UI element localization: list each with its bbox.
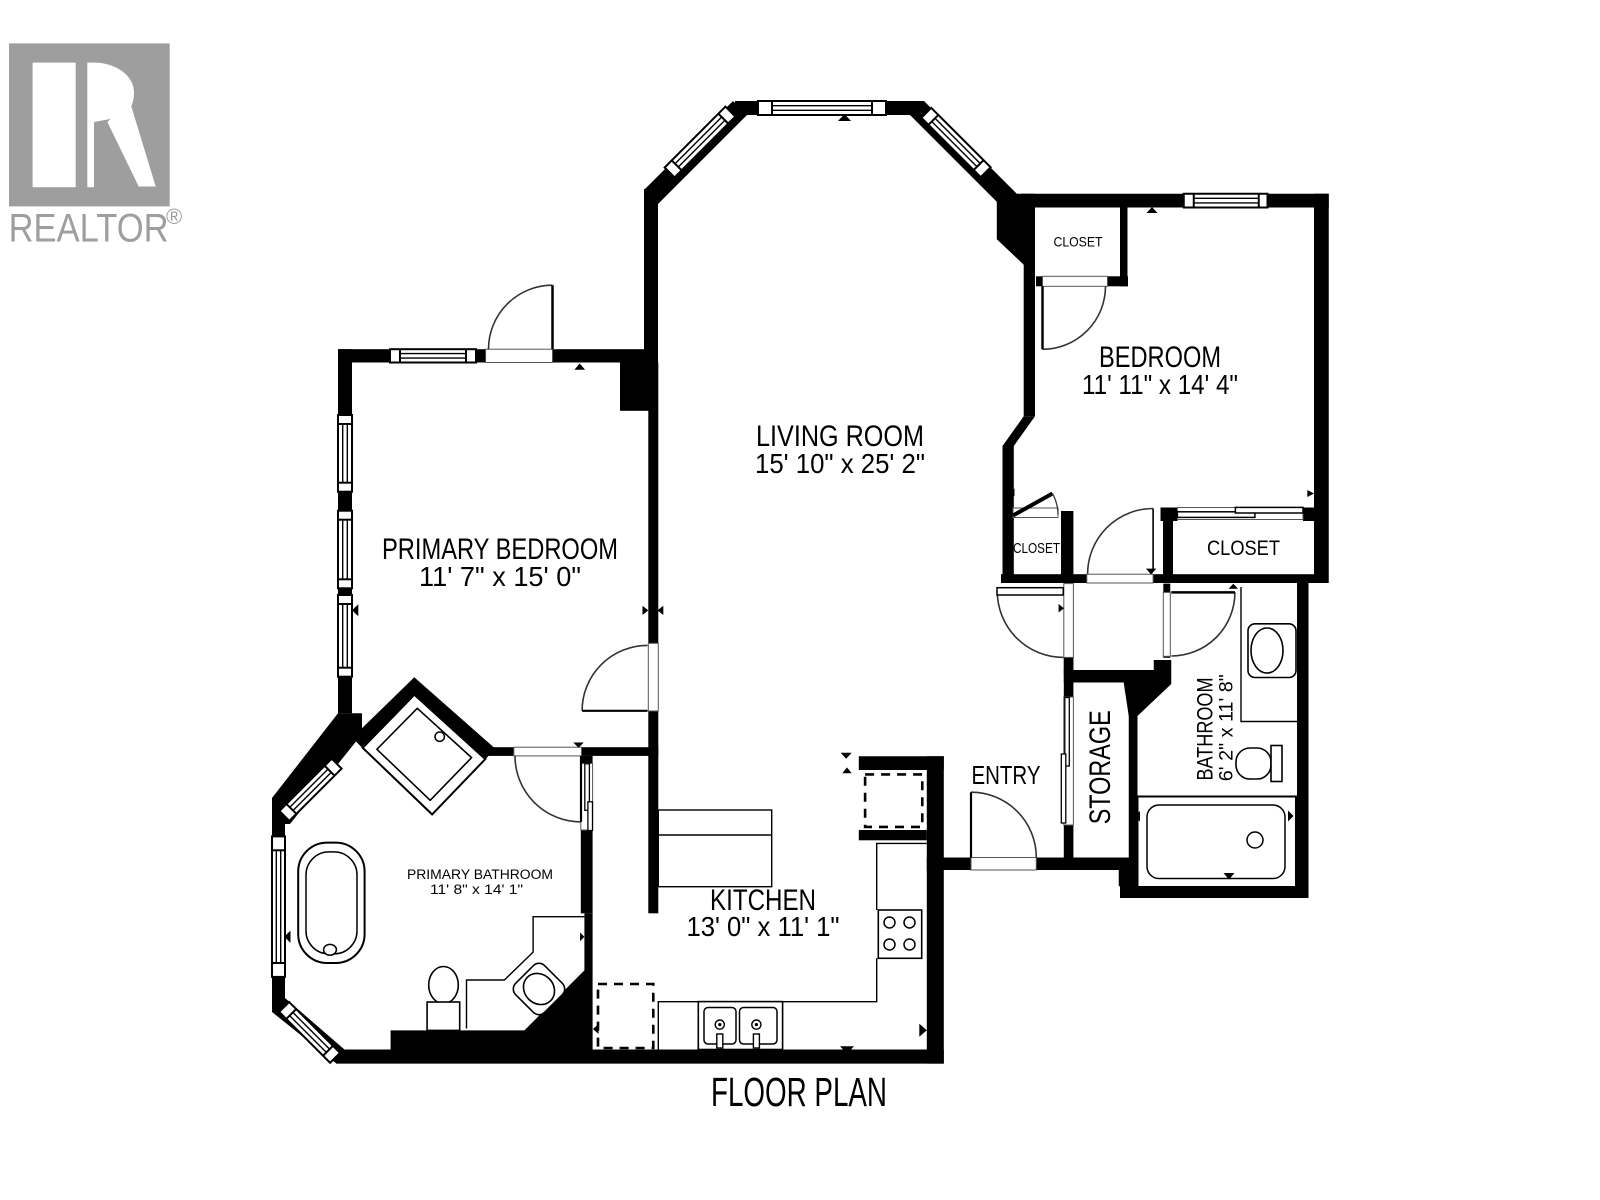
svg-text:CLOSET: CLOSET	[1013, 540, 1060, 557]
svg-text:CLOSET: CLOSET	[1207, 537, 1280, 560]
svg-text:BATHROOM: BATHROOM	[1193, 678, 1218, 781]
svg-text:PRIMARY BATHROOM: PRIMARY BATHROOM	[407, 867, 553, 882]
svg-text:11' 7" x 15' 0": 11' 7" x 15' 0"	[419, 561, 581, 592]
svg-text:ENTRY: ENTRY	[972, 760, 1041, 790]
svg-text:13' 0" x 11' 1": 13' 0" x 11' 1"	[687, 911, 840, 942]
svg-text:STORAGE: STORAGE	[1084, 710, 1117, 824]
svg-text:REALTOR: REALTOR	[9, 207, 169, 251]
svg-text:11' 8" x 14' 1": 11' 8" x 14' 1"	[430, 882, 523, 897]
svg-text:15' 10" x 25' 2": 15' 10" x 25' 2"	[755, 448, 925, 479]
svg-text:®: ®	[166, 204, 182, 229]
svg-text:11' 11" x 14' 4": 11' 11" x 14' 4"	[1082, 369, 1238, 400]
svg-text:6' 2" x 11' 8": 6' 2" x 11' 8"	[1216, 674, 1237, 781]
svg-text:FLOOR PLAN: FLOOR PLAN	[711, 1069, 887, 1115]
svg-text:CLOSET: CLOSET	[1054, 234, 1103, 250]
